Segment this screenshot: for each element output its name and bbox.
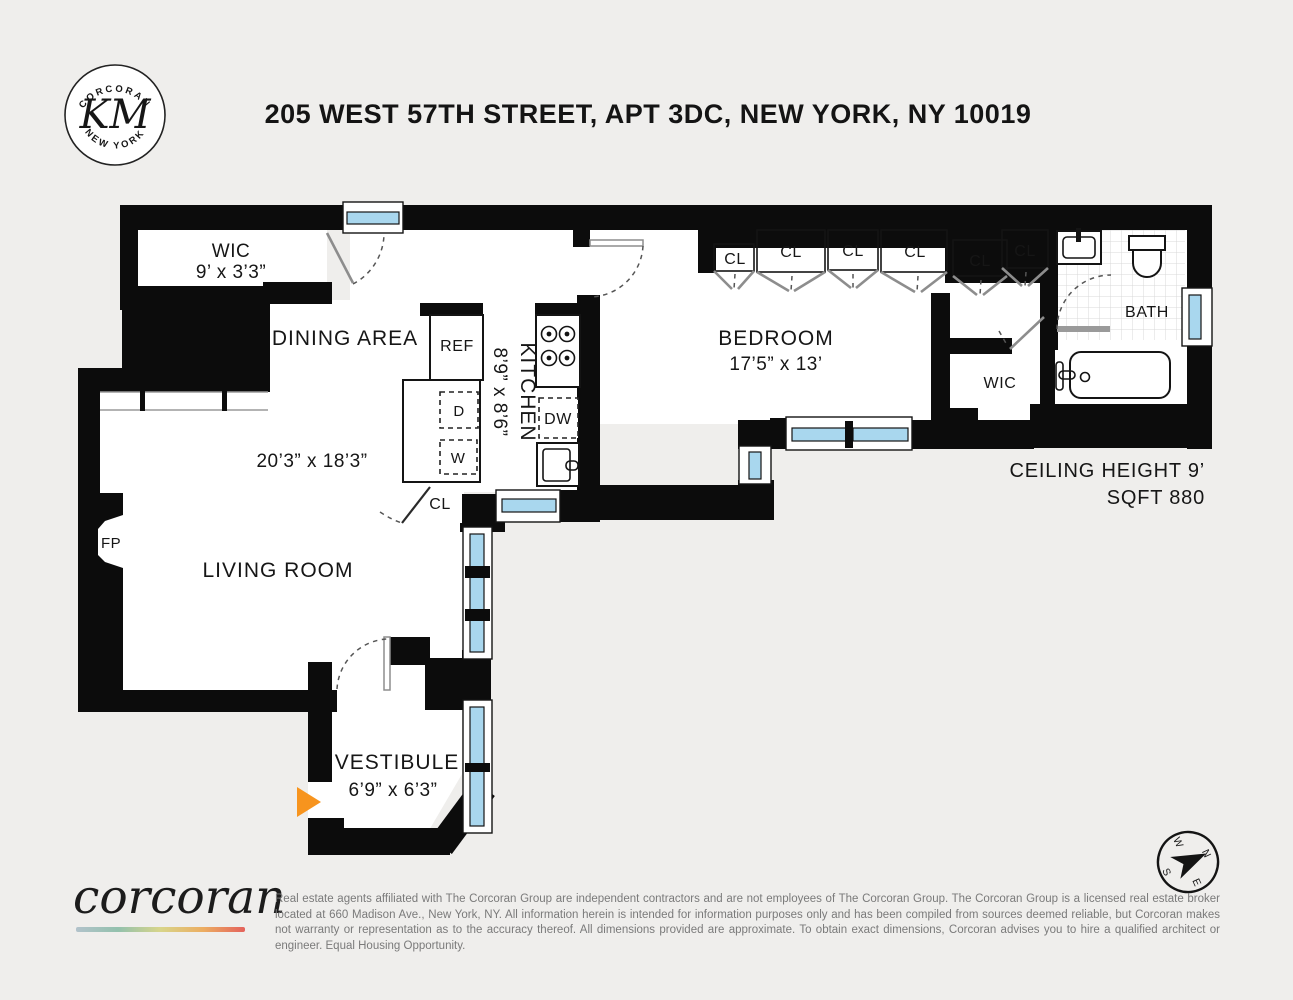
rainbow-bar <box>76 927 245 932</box>
stove <box>536 315 580 387</box>
kitchen-closet-label: CL <box>429 496 450 513</box>
floorplan-drawing: CL CL CL CL <box>0 0 1293 1000</box>
bath-sink <box>1057 228 1101 264</box>
kitchen-label: KITCHEN <box>516 342 539 441</box>
living-label: LIVING ROOM <box>202 559 353 582</box>
ceiling-height-note: CEILING HEIGHT 9’ <box>1010 460 1206 482</box>
svg-text:CL: CL <box>842 243 863 260</box>
wic2-label: WIC <box>984 375 1017 392</box>
bath-label: BATH <box>1125 304 1169 321</box>
vestibule-label: VESTIBULE <box>335 751 460 774</box>
window <box>463 527 492 659</box>
window <box>739 446 771 484</box>
bathtub <box>1056 352 1170 398</box>
svg-text:CL: CL <box>724 251 745 268</box>
dryer-label: D <box>453 403 464 420</box>
kitchen-dims: 8’9” x 8’6” <box>489 348 510 437</box>
compass-rose: N E S W <box>1148 822 1228 902</box>
kitchen-sink <box>537 443 579 486</box>
dining-label: DINING AREA <box>272 327 418 350</box>
disclaimer-text: Real estate agents affiliated with The C… <box>275 892 1220 954</box>
corcoran-wordmark: corcoran <box>73 874 285 921</box>
compass-e: E <box>1189 877 1203 888</box>
window <box>786 417 912 450</box>
window <box>463 700 492 833</box>
living-dims: 20’3” x 18’3” <box>256 451 367 472</box>
wic1-dims: 9’ x 3’3” <box>196 262 266 283</box>
wic1-label: WIC <box>212 241 250 262</box>
sqft-note: SQFT 880 <box>1107 487 1205 509</box>
bedroom-dims: 17’5” x 13’ <box>729 354 822 375</box>
window <box>496 490 560 522</box>
svg-text:CL: CL <box>1014 243 1035 260</box>
svg-text:CL: CL <box>780 244 801 261</box>
svg-text:FP: FP <box>101 535 121 552</box>
dishwasher-label: DW <box>544 411 572 428</box>
toilet <box>1129 236 1165 277</box>
svg-text:CL: CL <box>969 253 990 270</box>
vestibule-dims: 6’9” x 6’3” <box>349 780 438 801</box>
ref-label: REF <box>440 338 474 355</box>
svg-text:CL: CL <box>904 244 925 261</box>
window <box>343 202 403 233</box>
window <box>1182 288 1212 346</box>
bedroom-label: BEDROOM <box>718 327 834 350</box>
washer-label: W <box>451 450 466 467</box>
floorplan-page: CORCORAN KM NEW YORK 205 WEST 57TH STREE… <box>0 0 1293 1000</box>
